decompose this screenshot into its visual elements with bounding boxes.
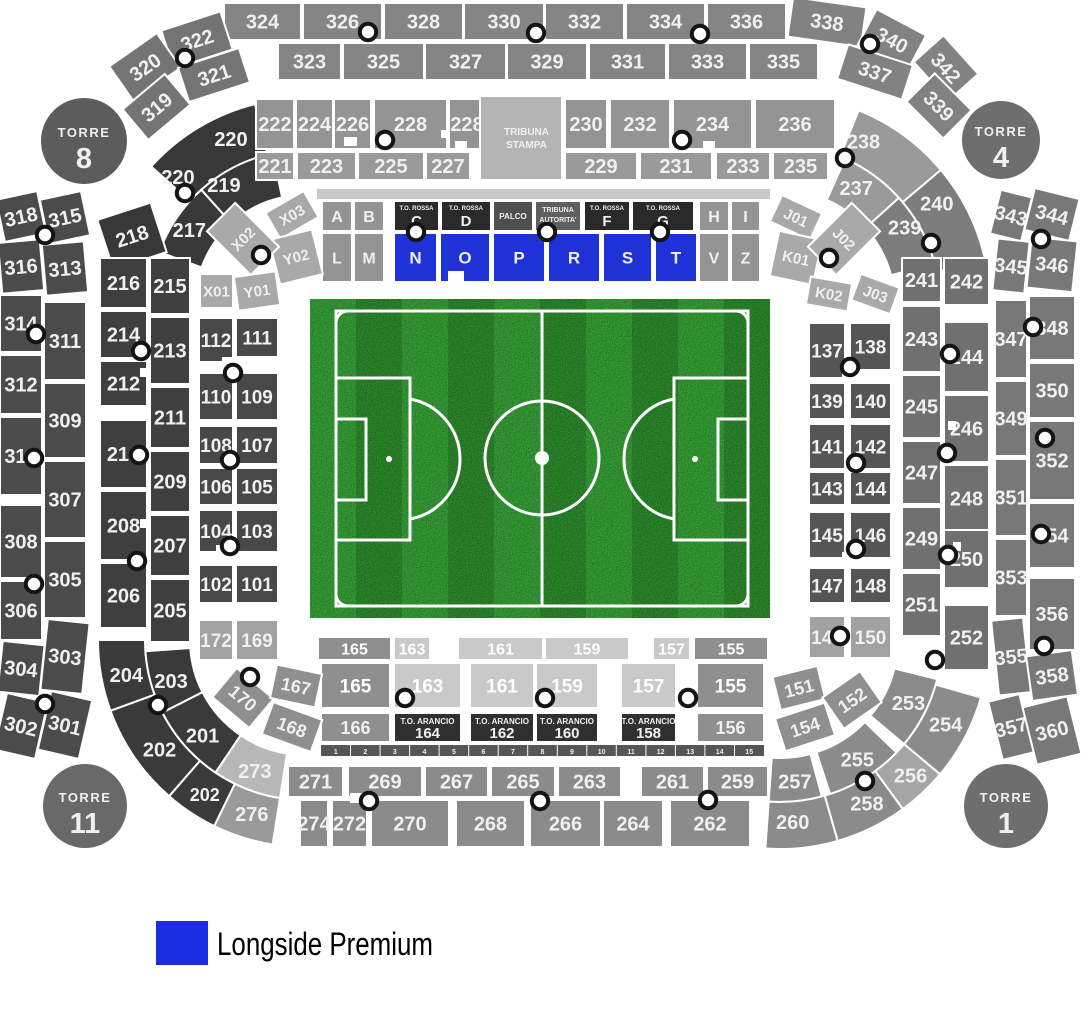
svg-text:274: 274 xyxy=(297,814,331,836)
svg-text:266: 266 xyxy=(549,814,582,836)
svg-text:261: 261 xyxy=(656,772,689,794)
svg-text:270: 270 xyxy=(393,814,426,836)
svg-text:352: 352 xyxy=(1035,451,1068,473)
svg-text:263: 263 xyxy=(573,772,606,794)
svg-text:237: 237 xyxy=(840,178,873,200)
svg-text:B: B xyxy=(363,209,375,226)
svg-text:161: 161 xyxy=(486,676,518,697)
svg-text:236: 236 xyxy=(778,114,811,136)
svg-text:212: 212 xyxy=(107,374,140,396)
svg-text:165: 165 xyxy=(340,676,372,697)
svg-text:331: 331 xyxy=(611,52,644,74)
svg-text:4: 4 xyxy=(422,749,426,756)
svg-text:253: 253 xyxy=(892,693,925,715)
svg-text:324: 324 xyxy=(246,12,280,34)
svg-text:353: 353 xyxy=(994,568,1027,590)
svg-text:221: 221 xyxy=(258,156,291,178)
svg-text:204: 204 xyxy=(110,665,144,687)
svg-text:229: 229 xyxy=(584,156,617,178)
svg-text:312: 312 xyxy=(4,375,37,397)
svg-text:311: 311 xyxy=(49,331,81,353)
svg-text:338: 338 xyxy=(809,10,845,36)
svg-text:333: 333 xyxy=(691,52,724,74)
svg-text:159: 159 xyxy=(574,641,601,658)
svg-text:157: 157 xyxy=(633,676,665,697)
svg-text:156: 156 xyxy=(715,718,745,738)
svg-text:202: 202 xyxy=(143,740,176,762)
svg-text:Z: Z xyxy=(741,250,751,267)
svg-text:169: 169 xyxy=(241,631,273,652)
svg-text:147: 147 xyxy=(811,576,843,597)
svg-text:222: 222 xyxy=(258,114,291,136)
svg-text:164: 164 xyxy=(415,725,441,742)
svg-text:158: 158 xyxy=(636,725,661,742)
svg-text:L: L xyxy=(332,250,342,267)
svg-text:PALCO: PALCO xyxy=(499,212,526,221)
svg-text:163: 163 xyxy=(412,676,444,697)
svg-text:219: 219 xyxy=(207,175,240,197)
svg-text:332: 332 xyxy=(568,12,601,34)
svg-text:216: 216 xyxy=(107,273,140,295)
svg-text:Longside Premium: Longside Premium xyxy=(217,926,433,962)
svg-text:A: A xyxy=(331,209,343,226)
svg-text:327: 327 xyxy=(449,52,482,74)
svg-text:209: 209 xyxy=(153,472,186,494)
svg-text:262: 262 xyxy=(693,814,726,836)
svg-text:172: 172 xyxy=(200,631,232,652)
svg-text:211: 211 xyxy=(154,408,186,430)
svg-text:D: D xyxy=(461,213,472,230)
svg-text:252: 252 xyxy=(950,628,983,650)
svg-text:326: 326 xyxy=(326,12,359,34)
svg-text:144: 144 xyxy=(855,479,887,500)
svg-text:107: 107 xyxy=(241,436,273,457)
svg-text:161: 161 xyxy=(487,641,514,658)
svg-text:1: 1 xyxy=(334,749,338,756)
svg-text:257: 257 xyxy=(778,771,811,793)
svg-text:217: 217 xyxy=(173,220,206,242)
svg-text:TRIBUNA: TRIBUNA xyxy=(504,127,549,138)
svg-text:140: 140 xyxy=(855,392,887,413)
svg-text:243: 243 xyxy=(905,329,938,351)
svg-text:325: 325 xyxy=(367,52,400,74)
svg-text:H: H xyxy=(708,209,720,226)
svg-text:227: 227 xyxy=(431,156,464,178)
svg-text:203: 203 xyxy=(154,671,187,693)
svg-text:109: 109 xyxy=(241,387,273,408)
svg-text:269: 269 xyxy=(368,772,401,794)
svg-text:F: F xyxy=(602,213,611,230)
svg-text:309: 309 xyxy=(48,411,81,433)
svg-text:232: 232 xyxy=(623,114,656,136)
svg-text:225: 225 xyxy=(374,156,407,178)
svg-text:165: 165 xyxy=(341,641,368,658)
svg-text:101: 101 xyxy=(241,575,273,596)
svg-text:328: 328 xyxy=(407,12,440,34)
svg-text:245: 245 xyxy=(905,397,938,419)
svg-text:239: 239 xyxy=(888,217,921,239)
svg-text:346: 346 xyxy=(1034,253,1069,278)
svg-text:T.O. ROSSA: T.O. ROSSA xyxy=(399,206,434,212)
svg-text:248: 248 xyxy=(950,489,983,511)
svg-text:241: 241 xyxy=(905,270,938,292)
svg-text:TORRE: TORRE xyxy=(980,790,1033,805)
svg-text:334: 334 xyxy=(649,12,683,34)
svg-text:231: 231 xyxy=(659,156,692,178)
svg-text:8: 8 xyxy=(76,143,92,175)
svg-text:10: 10 xyxy=(598,749,606,756)
svg-text:254: 254 xyxy=(929,715,963,737)
svg-text:103: 103 xyxy=(241,522,273,543)
svg-text:349: 349 xyxy=(994,409,1027,431)
svg-text:102: 102 xyxy=(200,575,232,596)
svg-text:347: 347 xyxy=(994,329,1027,351)
svg-text:8: 8 xyxy=(541,749,545,756)
svg-text:259: 259 xyxy=(721,772,754,794)
svg-text:5: 5 xyxy=(452,749,456,756)
svg-text:159: 159 xyxy=(551,676,583,697)
svg-text:6: 6 xyxy=(481,749,485,756)
svg-text:213: 213 xyxy=(153,341,186,363)
svg-text:265: 265 xyxy=(506,772,539,794)
svg-text:255: 255 xyxy=(841,749,874,771)
svg-text:160: 160 xyxy=(554,725,579,742)
svg-text:11: 11 xyxy=(627,749,635,756)
svg-text:336: 336 xyxy=(730,12,763,34)
svg-text:M: M xyxy=(362,250,375,267)
svg-text:166: 166 xyxy=(340,718,370,738)
svg-text:141: 141 xyxy=(811,437,843,458)
svg-text:138: 138 xyxy=(855,337,887,358)
svg-text:T.O. ROSSA: T.O. ROSSA xyxy=(646,206,681,212)
svg-text:329: 329 xyxy=(530,52,563,74)
svg-text:R: R xyxy=(568,249,580,268)
svg-text:228: 228 xyxy=(394,114,427,136)
svg-text:350: 350 xyxy=(1035,381,1068,403)
svg-text:251: 251 xyxy=(905,595,938,617)
svg-text:260: 260 xyxy=(776,812,809,834)
svg-text:233: 233 xyxy=(726,156,759,178)
svg-text:202: 202 xyxy=(190,785,220,805)
svg-text:106: 106 xyxy=(200,477,232,498)
svg-text:145: 145 xyxy=(811,526,843,547)
svg-text:T.O. ROSSA: T.O. ROSSA xyxy=(449,206,484,212)
svg-text:112: 112 xyxy=(201,331,232,352)
svg-text:12: 12 xyxy=(657,749,665,756)
svg-text:234: 234 xyxy=(696,114,730,136)
svg-text:249: 249 xyxy=(905,529,938,551)
svg-text:268: 268 xyxy=(474,814,507,836)
svg-text:TRIBUNA: TRIBUNA xyxy=(542,207,574,214)
svg-text:358: 358 xyxy=(1034,663,1070,689)
svg-text:1: 1 xyxy=(998,808,1014,840)
svg-text:355: 355 xyxy=(993,645,1028,670)
svg-text:215: 215 xyxy=(153,276,186,298)
svg-text:O: O xyxy=(458,249,471,268)
svg-text:271: 271 xyxy=(299,772,332,794)
svg-text:305: 305 xyxy=(48,570,81,592)
svg-text:15: 15 xyxy=(745,749,753,756)
svg-text:267: 267 xyxy=(440,772,473,794)
svg-text:303: 303 xyxy=(47,645,82,670)
svg-text:316: 316 xyxy=(4,255,39,280)
svg-text:157: 157 xyxy=(658,641,685,658)
svg-text:323: 323 xyxy=(293,52,326,74)
svg-text:351: 351 xyxy=(994,488,1027,510)
svg-text:313: 313 xyxy=(48,257,83,282)
svg-text:345: 345 xyxy=(993,255,1028,280)
svg-text:306: 306 xyxy=(4,601,37,623)
svg-text:247: 247 xyxy=(905,463,938,485)
svg-text:139: 139 xyxy=(811,392,843,413)
svg-text:228: 228 xyxy=(450,114,483,136)
svg-text:238: 238 xyxy=(847,131,880,153)
svg-text:11: 11 xyxy=(70,808,101,840)
svg-text:224: 224 xyxy=(298,114,332,136)
svg-text:242: 242 xyxy=(950,272,983,294)
svg-text:TORRE: TORRE xyxy=(59,790,112,805)
svg-text:TORRE: TORRE xyxy=(58,125,111,140)
svg-text:P: P xyxy=(513,249,524,268)
svg-text:163: 163 xyxy=(399,641,426,658)
svg-text:201: 201 xyxy=(186,726,219,748)
svg-text:T: T xyxy=(671,249,682,268)
svg-text:137: 137 xyxy=(811,341,843,362)
svg-text:111: 111 xyxy=(242,328,272,349)
svg-text:S: S xyxy=(622,249,633,268)
svg-text:307: 307 xyxy=(48,490,81,512)
svg-text:356: 356 xyxy=(1035,604,1068,626)
svg-text:276: 276 xyxy=(235,804,268,826)
svg-text:4: 4 xyxy=(993,142,1009,174)
svg-text:110: 110 xyxy=(201,387,232,408)
svg-text:335: 335 xyxy=(767,52,800,74)
svg-text:9: 9 xyxy=(570,749,574,756)
svg-text:14: 14 xyxy=(716,749,724,756)
svg-text:155: 155 xyxy=(715,676,747,697)
svg-text:207: 207 xyxy=(153,536,186,558)
svg-text:7: 7 xyxy=(511,749,515,756)
svg-text:258: 258 xyxy=(850,794,883,816)
svg-text:2: 2 xyxy=(363,749,367,756)
svg-text:150: 150 xyxy=(855,628,887,649)
svg-text:143: 143 xyxy=(811,479,843,500)
svg-text:105: 105 xyxy=(241,477,273,498)
svg-text:226: 226 xyxy=(336,114,369,136)
svg-text:I: I xyxy=(743,209,747,226)
svg-text:240: 240 xyxy=(920,193,953,215)
svg-text:155: 155 xyxy=(718,641,745,658)
svg-text:330: 330 xyxy=(487,12,520,34)
svg-text:3: 3 xyxy=(393,749,397,756)
svg-text:273: 273 xyxy=(238,761,271,783)
svg-text:206: 206 xyxy=(107,586,140,608)
svg-text:V: V xyxy=(709,250,720,267)
svg-text:220: 220 xyxy=(214,129,247,151)
svg-text:235: 235 xyxy=(784,156,817,178)
svg-text:205: 205 xyxy=(153,601,186,623)
svg-text:230: 230 xyxy=(569,114,602,136)
svg-text:272: 272 xyxy=(333,814,366,836)
svg-text:264: 264 xyxy=(616,814,650,836)
svg-text:304: 304 xyxy=(3,657,39,682)
svg-text:162: 162 xyxy=(489,725,514,742)
svg-text:STAMPA: STAMPA xyxy=(506,140,547,151)
svg-text:T.O. ROSSA: T.O. ROSSA xyxy=(590,206,625,212)
svg-text:148: 148 xyxy=(855,576,887,597)
svg-text:308: 308 xyxy=(4,532,37,554)
svg-text:13: 13 xyxy=(686,749,694,756)
svg-text:223: 223 xyxy=(310,156,343,178)
svg-text:TORRE: TORRE xyxy=(975,124,1028,139)
svg-text:X01: X01 xyxy=(203,283,230,300)
svg-text:256: 256 xyxy=(894,765,927,787)
svg-text:N: N xyxy=(409,249,421,268)
svg-text:208: 208 xyxy=(107,516,140,538)
